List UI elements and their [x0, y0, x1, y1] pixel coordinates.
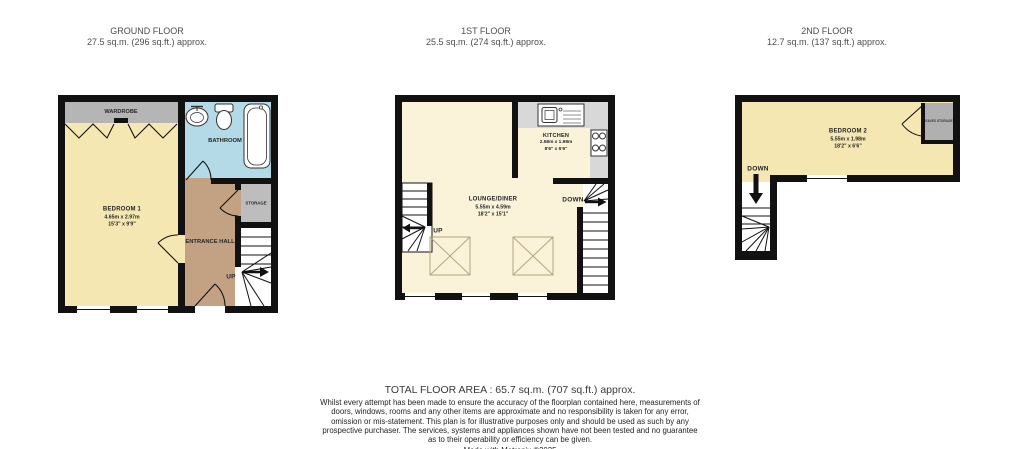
ground-floor-plan: WARDROBE BEDROOM 1 4.65m x 2.97m 15'3" x…: [58, 95, 278, 313]
room-dims-metric: 5.55m x 4.59m: [469, 204, 517, 211]
disclaimer-text: Whilst every attempt has been made to en…: [319, 398, 701, 445]
entrance-hall-label: ENTRANCE HALL: [185, 239, 234, 245]
second-floor-title: 2ND FLOOR 12.7 sq.m. (137 sq.ft.) approx…: [717, 26, 937, 49]
eaves-storage-label: EAVES STORAGE: [925, 119, 952, 123]
floorplan-page: GROUND FLOOR 27.5 sq.m. (296 sq.ft.) app…: [0, 0, 1020, 449]
storage-door-opening: [235, 190, 241, 216]
up-label: UP: [433, 228, 442, 235]
windows: [807, 175, 847, 182]
stair-wall: [427, 183, 432, 226]
bathroom-door-opening: [185, 178, 211, 184]
bathtub-icon: [244, 104, 270, 168]
room-name: LOUNGE/DINER: [469, 196, 517, 204]
windows: [405, 293, 547, 300]
floor-area-text: 27.5 sq.m. (296 sq.ft.) approx.: [37, 37, 257, 48]
first-floor-title: 1ST FLOOR 25.5 sq.m. (274 sq.ft.) approx…: [376, 26, 596, 49]
stair-wall: [577, 207, 583, 293]
floor-area-text: 25.5 sq.m. (274 sq.ft.) approx.: [376, 37, 596, 48]
bedroom2-label: BEDROOM 2 5.55m x 1.98m 18'2" x 6'6": [829, 128, 867, 149]
hob-icon: [591, 130, 607, 156]
staircase-up: [402, 183, 432, 252]
room-dims-imperial: 18'2" x 15'1": [469, 211, 517, 218]
first-floor-plan: LOUNGE/DINER 5.55m x 4.59m 18'2" x 15'1"…: [395, 95, 615, 300]
kitchen-wall: [512, 102, 518, 178]
bedroom1-label: BEDROOM 1 4.65m x 2.97m 15'3" x 9'9": [103, 206, 141, 227]
closet-wall: [921, 140, 953, 144]
ground-floor-title: GROUND FLOOR 27.5 sq.m. (296 sq.ft.) app…: [37, 26, 257, 49]
footer-block: Whilst every attempt has been made to en…: [319, 398, 701, 449]
room-dims-metric: 5.55m x 1.98m: [829, 136, 867, 143]
room-dims-imperial: 18'2" x 6'6": [829, 143, 867, 150]
bathroom-label: BATHROOM: [208, 138, 242, 144]
wardrobe-label: WARDROBE: [104, 109, 137, 115]
kitchen-sink-icon: [538, 104, 584, 126]
down-label: DOWN: [562, 197, 583, 204]
front-door-opening: [195, 306, 225, 313]
bedroom1-door-opening: [178, 235, 185, 263]
staircase-up: [235, 228, 271, 306]
down-label: DOWN: [747, 166, 768, 173]
storage-label: STORAGE: [245, 201, 266, 206]
floor-title-text: 2ND FLOOR: [717, 26, 937, 37]
room-dims-metric: 2.58m x 1.98m: [540, 140, 573, 146]
floor-title-text: 1ST FLOOR: [376, 26, 596, 37]
total-floor-area: TOTAL FLOOR AREA : 65.7 sq.m. (707 sq.ft…: [0, 384, 1020, 396]
kitchen-label: KITCHEN 2.58m x 1.98m 8'6" x 6'6": [540, 133, 573, 153]
entrance-hall-floor: [185, 184, 235, 306]
closet-wall: [921, 103, 925, 140]
room-name: BEDROOM 1: [103, 206, 141, 214]
floor-title-text: GROUND FLOOR: [37, 26, 257, 37]
kitchen-wall: [553, 178, 608, 184]
room-dims-imperial: 15'3" x 9'9": [103, 221, 141, 228]
stair-wall: [235, 228, 241, 267]
lounge-label: LOUNGE/DINER 5.55m x 4.59m 18'2" x 15'1": [469, 196, 517, 217]
up-label: UP: [226, 274, 235, 281]
inner-wall: [770, 175, 953, 182]
room-dims-imperial: 8'6" x 6'6": [540, 147, 573, 153]
room-name: BEDROOM 2: [829, 128, 867, 136]
room-dims-metric: 4.65m x 2.97m: [103, 214, 141, 221]
toilet-icon: [215, 104, 233, 130]
second-floor-plan: BEDROOM 2 5.55m x 1.98m 18'2" x 6'6" EAV…: [735, 95, 960, 260]
wardrobe-handle: [114, 118, 128, 123]
bedroom1-floor: [65, 102, 178, 306]
floor-area-text: 12.7 sq.m. (137 sq.ft.) approx.: [717, 37, 937, 48]
